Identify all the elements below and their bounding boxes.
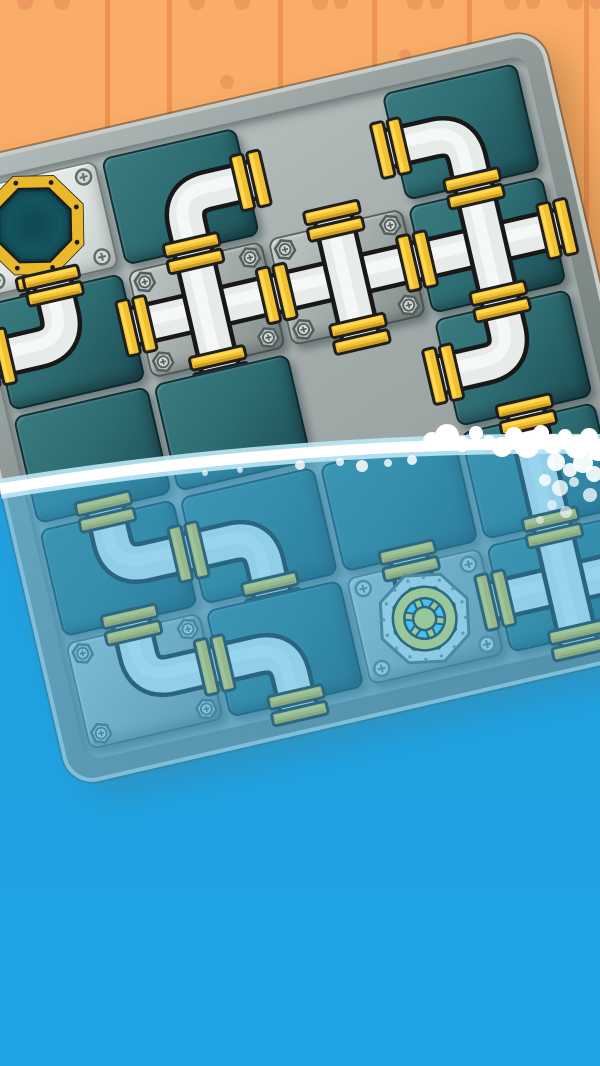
- bolt-icon: [274, 238, 297, 261]
- tile-art: [65, 612, 224, 750]
- board-surface: [0, 55, 600, 762]
- tile-r4c2-elbow[interactable]: [179, 467, 338, 605]
- bolt-icon: [397, 293, 420, 316]
- tile-art: [267, 208, 426, 346]
- valve-goal-tile: [346, 547, 505, 685]
- screw-icon: [93, 248, 111, 266]
- bolt-icon: [152, 350, 175, 373]
- tile-r3c2-blank[interactable]: [153, 354, 312, 492]
- bolt-icon: [379, 213, 402, 236]
- nail-dot: [220, 75, 234, 89]
- tile-art: [346, 547, 505, 685]
- screw-icon: [373, 659, 391, 677]
- screw-icon: [0, 272, 6, 290]
- tile-art: [127, 241, 286, 379]
- screw-icon: [478, 635, 496, 653]
- nail-dot: [54, 0, 70, 10]
- nail-dot: [17, 0, 33, 10]
- screw-icon: [460, 555, 478, 573]
- tile-art: [153, 354, 312, 492]
- bolt-icon: [292, 318, 315, 341]
- nail-dot: [504, 0, 520, 10]
- screw-icon: [75, 168, 93, 186]
- bolt-icon: [195, 697, 218, 720]
- puzzle-board: [0, 28, 600, 787]
- bolt-icon: [133, 270, 156, 293]
- bolt-icon: [257, 326, 280, 349]
- screw-icon: [354, 580, 372, 598]
- nail-dot: [189, 0, 205, 10]
- tile-r2c3-cross: [267, 208, 426, 346]
- bolt-icon: [238, 246, 261, 269]
- nail-dot: [407, 0, 423, 10]
- tile-r5c1-elbow: [65, 612, 224, 750]
- tile-r2c2-cross: [127, 241, 286, 379]
- game-screen: [0, 0, 600, 1066]
- bolt-icon: [71, 642, 94, 665]
- nail-dot: [334, 0, 348, 9]
- nail-dot: [430, 0, 444, 9]
- nail-dot: [234, 0, 250, 10]
- bolt-icon: [90, 722, 113, 745]
- tile-r5c2-elbow[interactable]: [205, 580, 364, 718]
- nail-dot: [567, 0, 583, 10]
- tile-art: [205, 580, 364, 718]
- bolt-icon: [176, 617, 199, 640]
- nail-dot: [526, 0, 540, 9]
- tile-art: [179, 467, 338, 605]
- nail-dot: [312, 0, 328, 10]
- nail-dot: [589, 0, 600, 9]
